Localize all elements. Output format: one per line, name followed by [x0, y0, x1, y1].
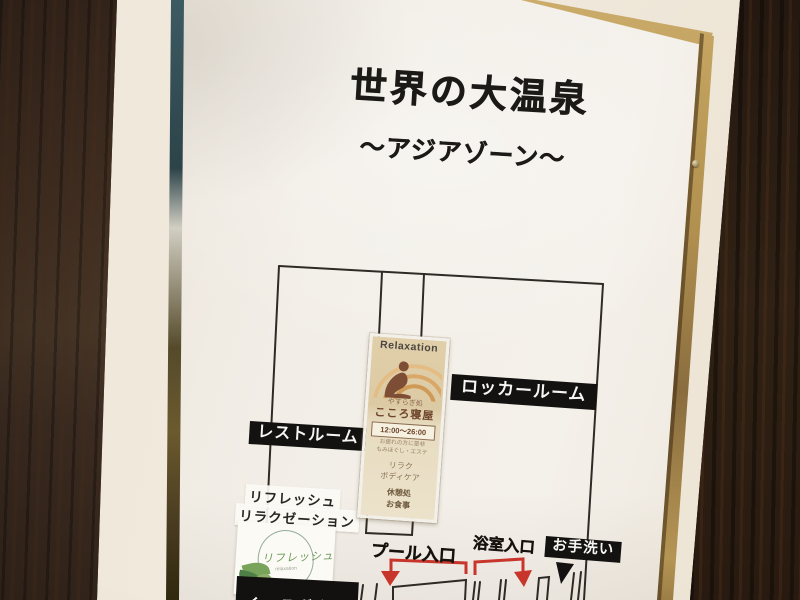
plan-pool-opening — [393, 580, 466, 600]
down-arrow-icon — [514, 570, 532, 587]
plan-top-wall — [279, 266, 603, 284]
refresh-logo-subtext: relaxation — [275, 566, 297, 573]
relaxing-person-icon — [371, 351, 444, 402]
plan-stub-5 — [571, 572, 581, 600]
plan-stub-3 — [499, 580, 506, 600]
photo-stage: 世界の大温泉 ～アジアゾーン～ レストルーム ロッカールーム プール入口 浴室入… — [0, 0, 800, 600]
plan-stub-2 — [473, 582, 480, 600]
refresh-logo-script: リフレッシュ — [262, 547, 335, 566]
relax-hours: 12:00～26:00 — [371, 421, 436, 440]
plan-stub-1 — [361, 584, 377, 600]
toilet-label-tail — [556, 562, 574, 584]
bath-entrance-arrow — [475, 559, 532, 587]
plan-stub-4 — [537, 577, 549, 600]
down-arrow-icon — [381, 571, 400, 586]
relaxation-sign: Relaxation やすらぎ処 こころ寝屋 12:00～26:00 お疲れの方… — [357, 333, 450, 523]
